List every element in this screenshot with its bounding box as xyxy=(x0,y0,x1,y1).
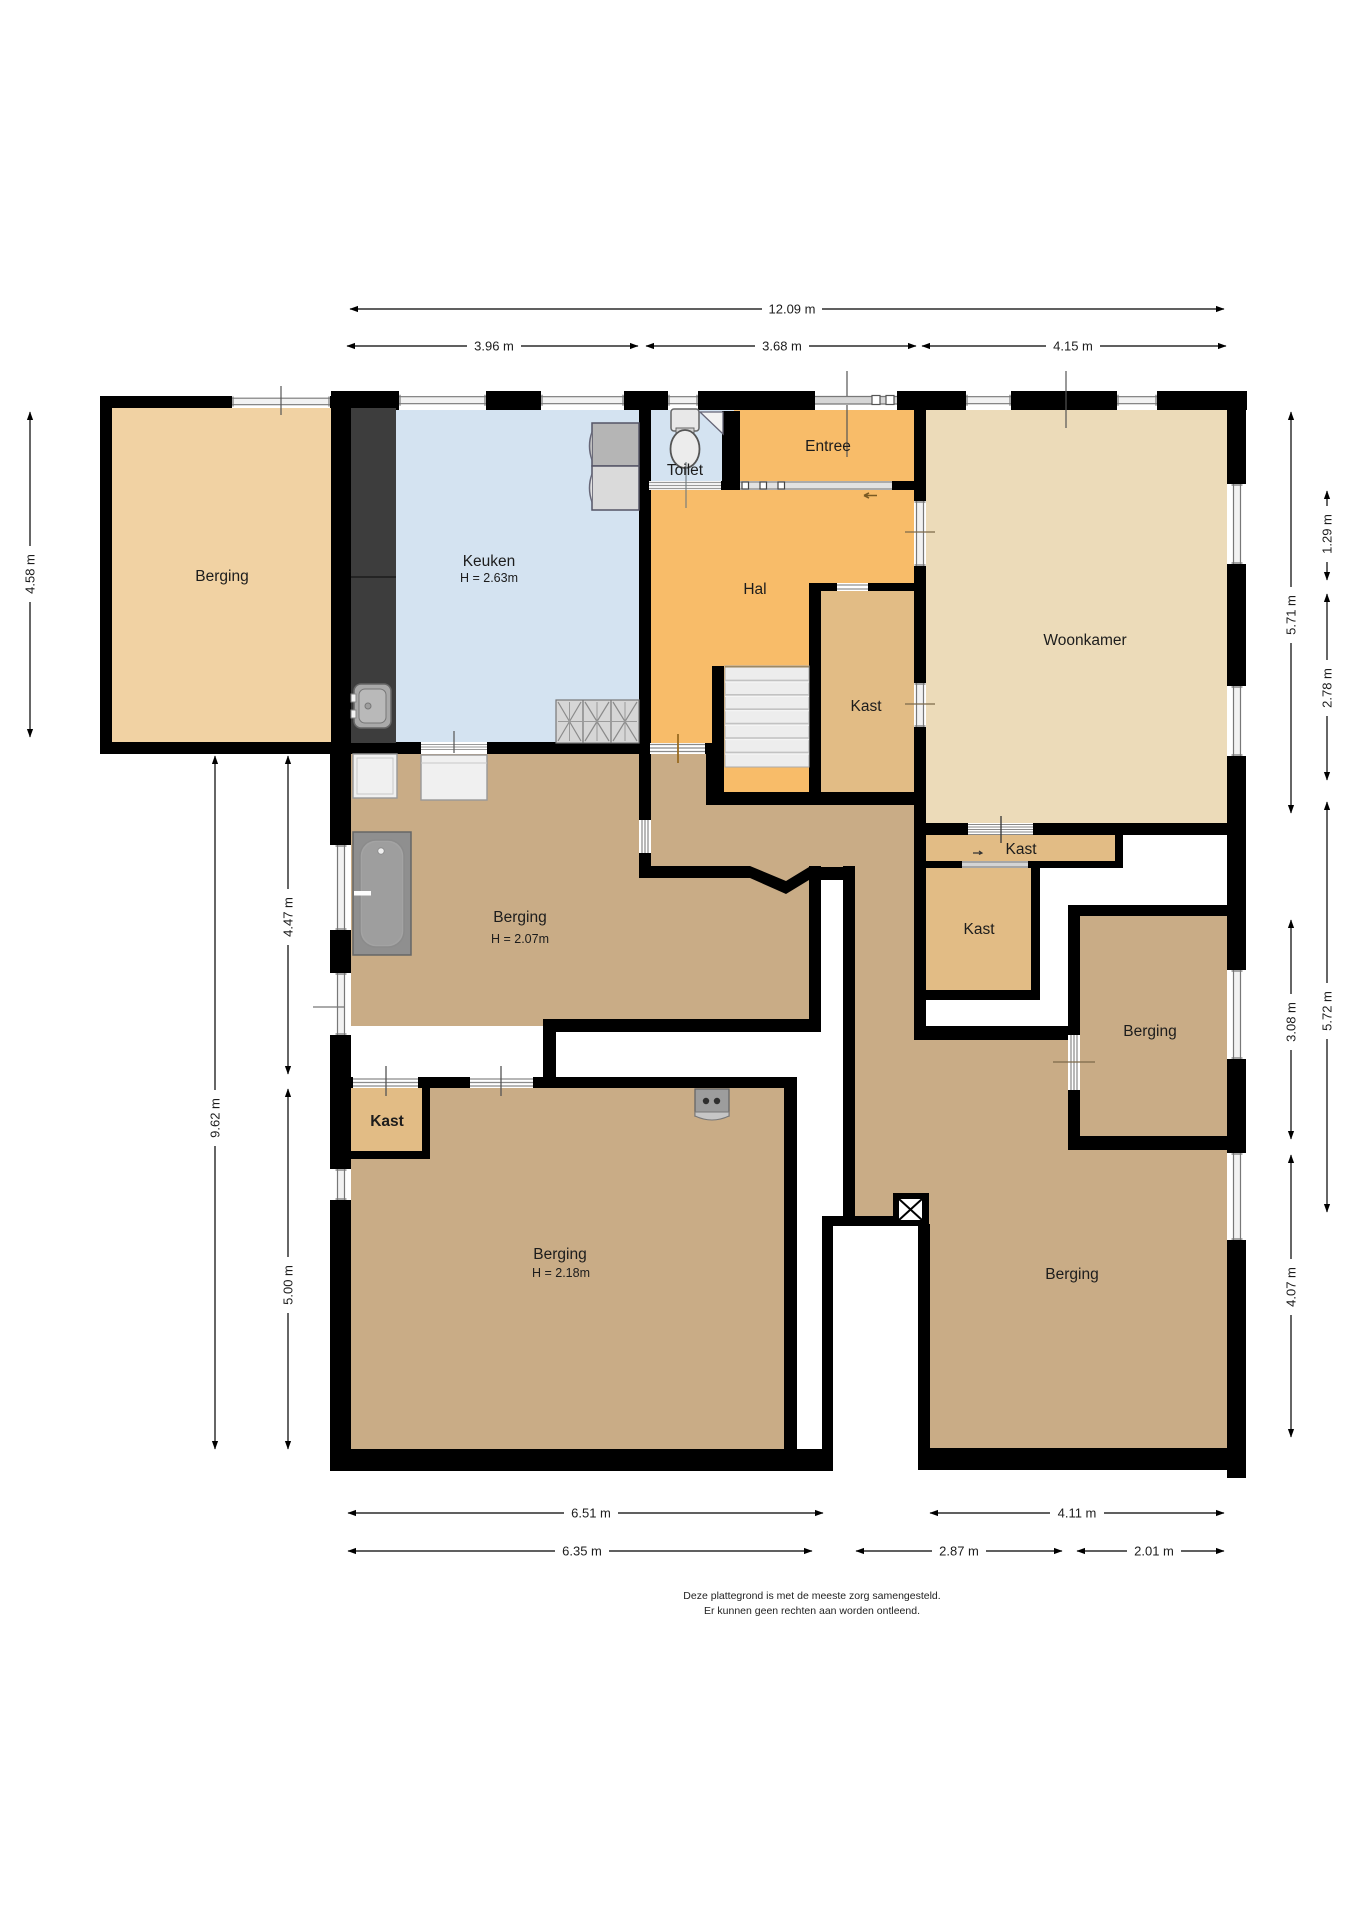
svg-text:Hal: Hal xyxy=(743,581,766,598)
svg-text:3.96 m: 3.96 m xyxy=(474,339,514,354)
svg-text:4.47 m: 4.47 m xyxy=(281,897,296,937)
svg-text:H = 2.18m: H = 2.18m xyxy=(532,1266,590,1280)
svg-text:6.35 m: 6.35 m xyxy=(562,1544,602,1559)
svg-text:4.11 m: 4.11 m xyxy=(1058,1506,1097,1521)
svg-text:4.07 m: 4.07 m xyxy=(1284,1267,1299,1307)
svg-text:H = 2.07m: H = 2.07m xyxy=(491,932,549,946)
svg-text:Keuken: Keuken xyxy=(463,553,516,570)
svg-text:6.51 m: 6.51 m xyxy=(571,1506,611,1521)
svg-text:Kast: Kast xyxy=(1005,841,1037,858)
svg-text:Deze plattegrond is met de mee: Deze plattegrond is met de meeste zorg s… xyxy=(683,1590,940,1602)
svg-text:Berging: Berging xyxy=(1123,1023,1176,1040)
svg-text:Kast: Kast xyxy=(850,698,882,715)
svg-text:Berging: Berging xyxy=(533,1246,586,1263)
svg-text:Toilet: Toilet xyxy=(667,462,704,479)
svg-text:Berging: Berging xyxy=(493,909,546,926)
svg-text:Entree: Entree xyxy=(805,438,851,455)
svg-text:Berging: Berging xyxy=(195,568,248,585)
svg-text:Er kunnen geen rechten aan wor: Er kunnen geen rechten aan worden ontlee… xyxy=(704,1605,920,1617)
svg-text:1.29 m: 1.29 m xyxy=(1320,514,1335,554)
svg-text:4.15 m: 4.15 m xyxy=(1053,339,1093,354)
svg-text:Kast: Kast xyxy=(370,1113,404,1130)
svg-text:5.71 m: 5.71 m xyxy=(1284,595,1299,635)
svg-text:5.00 m: 5.00 m xyxy=(281,1265,296,1305)
svg-text:2.01 m: 2.01 m xyxy=(1134,1544,1174,1559)
svg-text:3.68 m: 3.68 m xyxy=(762,339,802,354)
svg-text:2.78 m: 2.78 m xyxy=(1320,668,1335,708)
svg-text:Berging: Berging xyxy=(1045,1266,1098,1283)
svg-text:Woonkamer: Woonkamer xyxy=(1043,632,1126,649)
svg-text:4.58 m: 4.58 m xyxy=(23,554,38,594)
svg-text:Kast: Kast xyxy=(963,921,995,938)
svg-text:3.08 m: 3.08 m xyxy=(1284,1002,1299,1042)
svg-text:2.87 m: 2.87 m xyxy=(939,1544,979,1559)
svg-text:9.62 m: 9.62 m xyxy=(208,1098,223,1138)
svg-text:12.09 m: 12.09 m xyxy=(769,302,816,317)
svg-text:H = 2.63m: H = 2.63m xyxy=(460,571,518,585)
svg-text:5.72 m: 5.72 m xyxy=(1320,991,1335,1031)
